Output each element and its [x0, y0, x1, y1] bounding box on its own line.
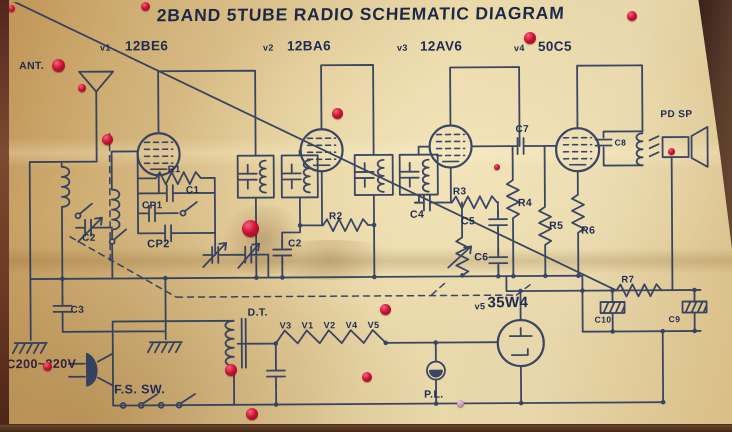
label-r5: R5: [549, 220, 563, 232]
label-pd-sp: PD SP: [660, 109, 692, 120]
tube-v2-symbol: [300, 129, 342, 171]
label-cp1: CP1: [142, 200, 163, 211]
paint-drop: [141, 2, 150, 11]
label-c2-bypass: C2: [288, 238, 302, 249]
heater-label-v4: V4: [346, 320, 358, 330]
heater-label-v5: V5: [368, 320, 380, 330]
label-c3: C3: [71, 305, 85, 316]
label-c5: C5: [461, 215, 475, 227]
tube-v3-designator: v3: [397, 43, 408, 53]
label-c1: C1: [186, 185, 200, 196]
tube-v3-symbol: [429, 125, 471, 167]
pilot-lamp: [427, 362, 445, 380]
paint-drop: [627, 11, 637, 21]
label-c8: C8: [615, 137, 627, 147]
label-ant: ANT.: [19, 60, 44, 72]
tube-v2-type: 12BA6: [287, 38, 331, 53]
label-r1: R1: [168, 164, 181, 175]
paint-drop: [102, 134, 113, 145]
rectifier-tube-v5-symbol: [498, 320, 544, 366]
label-c9: C9: [669, 314, 681, 324]
power-plug: [87, 354, 97, 386]
label-c4: C4: [410, 209, 424, 221]
label-r7: R7: [621, 274, 634, 285]
label-ac-rating: AC200~220V: [0, 357, 76, 371]
tube-v4-designator: v4: [514, 43, 525, 53]
tube-v1-type: 12BE6: [125, 38, 168, 53]
tube-v2-designator: v2: [263, 43, 274, 53]
tube-v4-type: 50C5: [538, 39, 572, 54]
schematic-photo: 2BAND 5TUBE RADIO SCHEMATIC DIAGRAM v1 1…: [0, 0, 732, 432]
if-transformer-1: [238, 150, 319, 277]
heater-label-v2: V2: [324, 320, 336, 330]
output-stage: [571, 65, 708, 291]
paint-drop: [380, 304, 391, 315]
label-c6: C6: [474, 251, 488, 263]
paint-drop: [362, 372, 372, 382]
label-r2: R2: [329, 211, 343, 222]
power-filter-network: [3, 0, 708, 406]
label-r4: R4: [518, 197, 532, 209]
tube-v3-type: 12AV6: [420, 38, 462, 53]
speaker-driver: [663, 137, 689, 157]
paint-drop: [332, 108, 343, 119]
paint-drop: [225, 364, 237, 376]
schematic-title: 2BAND 5TUBE RADIO SCHEMATIC DIAGRAM: [156, 3, 565, 26]
paint-drop: [246, 408, 258, 420]
tube-v5-designator: v5: [475, 301, 486, 311]
paint-drop: [43, 362, 52, 371]
schematic-layer: 2BAND 5TUBE RADIO SCHEMATIC DIAGRAM v1 1…: [0, 0, 732, 432]
heater-label-v1: V1: [302, 320, 314, 330]
paint-drop: [52, 59, 65, 72]
label-r6: R6: [581, 225, 595, 237]
tube-v1-designator: v1: [100, 43, 111, 53]
label-c2-tuning: C2: [82, 233, 96, 244]
paint-drop: [8, 5, 15, 12]
paint-drop: [524, 32, 536, 44]
paint-drop: [668, 148, 675, 155]
label-r3: R3: [453, 186, 467, 197]
label-fs-sw: F.S. SW.: [114, 382, 165, 396]
agc-network: [273, 195, 374, 278]
label-pl: P.L.: [424, 389, 444, 401]
paint-drop: [78, 84, 86, 92]
label-c7: C7: [515, 124, 529, 135]
heater-label-v3: V3: [280, 320, 292, 330]
tube-v5-type: 35W4: [487, 294, 528, 311]
if-transformer-2: [355, 147, 438, 204]
v1-plate-wiring: [158, 71, 256, 157]
tube-v4-symbol: [556, 128, 599, 171]
detector-network: [414, 67, 556, 277]
schematic-drawing: [0, 0, 732, 432]
speaker-cone: [691, 127, 707, 167]
paint-drop: [494, 164, 500, 170]
label-c10: C10: [595, 315, 612, 325]
label-dt: D.T.: [248, 307, 268, 319]
paint-drop: [457, 400, 464, 407]
heater-string: [238, 329, 521, 405]
label-cp2: CP2: [147, 238, 170, 250]
paint-drop: [242, 220, 259, 237]
